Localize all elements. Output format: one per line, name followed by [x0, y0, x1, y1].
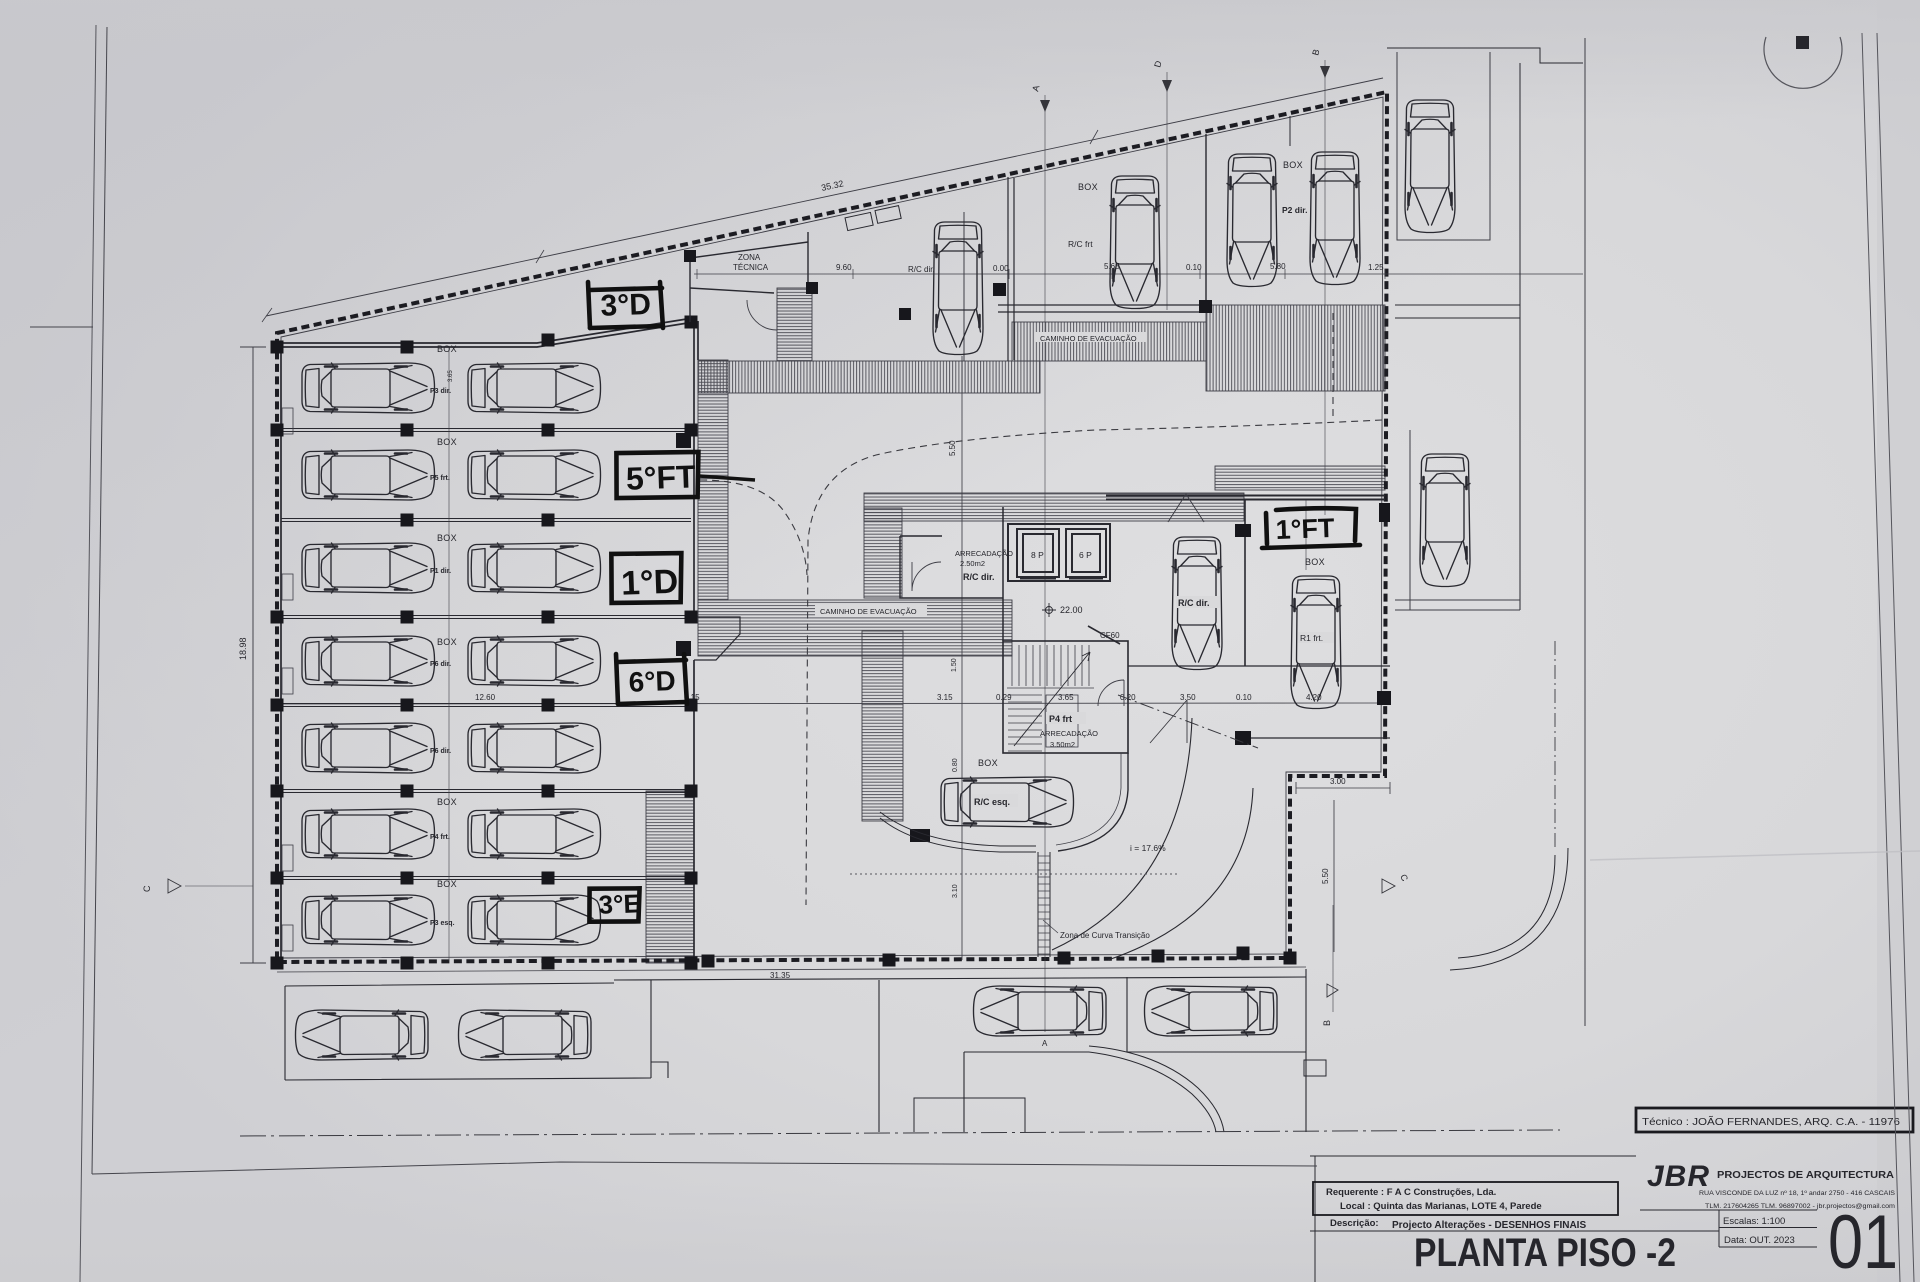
svg-text:R/C esq.: R/C esq.	[974, 797, 1010, 807]
svg-text:0.80: 0.80	[952, 758, 959, 772]
svg-text:JBR: JBR	[1647, 1160, 1710, 1193]
svg-text:Requerente : F A C Construçõe: Requerente : F A C Construções, Lda.	[1326, 1187, 1496, 1198]
svg-text:3.00: 3.00	[1330, 777, 1346, 786]
svg-text:R/C dir.: R/C dir.	[908, 265, 935, 274]
svg-text:A: A	[1042, 1039, 1048, 1048]
svg-text:CAMINHO DE EVACUAÇÃO: CAMINHO DE EVACUAÇÃO	[820, 607, 917, 616]
svg-text:1.50: 1.50	[951, 658, 958, 672]
svg-text:1.25: 1.25	[1368, 263, 1384, 272]
svg-text:Descrição:: Descrição:	[1330, 1218, 1379, 1229]
svg-text:P3 esq.: P3 esq.	[430, 920, 455, 927]
svg-text:RUA VISCONDE DA LUZ nº 18, 1º: RUA VISCONDE DA LUZ nº 18, 1º andar 2750…	[1699, 1190, 1895, 1197]
svg-text:BOX: BOX	[1078, 182, 1098, 192]
svg-text:ARRECADAÇÃO: ARRECADAÇÃO	[1040, 729, 1098, 738]
svg-text:Data: OUT. 2023: Data: OUT. 2023	[1724, 1235, 1795, 1246]
svg-text:ZONA: ZONA	[738, 253, 761, 262]
svg-text:1°FT: 1°FT	[1275, 513, 1335, 545]
svg-text:0.10: 0.10	[1186, 263, 1202, 272]
svg-text:P2 dir.: P2 dir.	[1282, 205, 1308, 215]
svg-text:22.00: 22.00	[1060, 605, 1083, 615]
svg-text:3.10: 3.10	[952, 884, 959, 898]
svg-text:9.60: 9.60	[836, 263, 852, 272]
svg-text:P4 frt.: P4 frt.	[430, 834, 450, 841]
svg-text:R1 frt.: R1 frt.	[1300, 633, 1323, 643]
svg-text:P1 dir.: P1 dir.	[430, 568, 451, 575]
svg-text:Projecto Alterações - DESENHOS: Projecto Alterações - DESENHOS FINAIS	[1392, 1220, 1586, 1231]
svg-text:0.00: 0.00	[993, 264, 1009, 273]
svg-text:BOX: BOX	[437, 344, 457, 354]
svg-text:P6 dir.: P6 dir.	[430, 748, 451, 755]
svg-text:P3 dir.: P3 dir.	[430, 388, 451, 395]
svg-text:5°FT: 5°FT	[625, 458, 696, 496]
svg-text:3°D: 3°D	[600, 288, 651, 323]
svg-text:R/C dir.: R/C dir.	[1178, 598, 1210, 608]
svg-text:BOX: BOX	[437, 533, 457, 543]
svg-text:BOX: BOX	[437, 437, 457, 447]
svg-text:0.29: 0.29	[996, 693, 1012, 702]
svg-text:6 P: 6 P	[1079, 550, 1092, 560]
svg-text:BOX: BOX	[1305, 557, 1325, 567]
svg-text:P6 dir.: P6 dir.	[430, 661, 451, 668]
svg-text:Técnico : JOÃO FERNANDES, ARQ.: Técnico : JOÃO FERNANDES, ARQ. C.A. - 11…	[1642, 1115, 1900, 1128]
svg-text:R/C frt: R/C frt	[1068, 239, 1093, 249]
svg-text:BOX: BOX	[437, 637, 457, 647]
svg-text:Escalas: 1:100: Escalas: 1:100	[1723, 1216, 1785, 1227]
svg-text:6°D: 6°D	[628, 665, 676, 698]
svg-text:BOX: BOX	[978, 758, 998, 768]
svg-text:1°D: 1°D	[620, 563, 678, 603]
svg-text:3.15: 3.15	[937, 693, 953, 702]
svg-text:3.50m2: 3.50m2	[1050, 740, 1075, 749]
svg-text:3.65: 3.65	[1058, 693, 1074, 702]
svg-text:18.98: 18.98	[238, 637, 248, 660]
svg-text:01: 01	[1828, 1200, 1898, 1282]
svg-text:PLANTA PISO -2: PLANTA PISO -2	[1414, 1231, 1676, 1275]
svg-text:8 P: 8 P	[1031, 550, 1044, 560]
svg-text:Local : Quinta das Marianas, L: Local : Quinta das Marianas, LOTE 4, Par…	[1340, 1201, 1542, 1212]
svg-text:5.80: 5.80	[1270, 262, 1286, 271]
svg-text:i = 17.6%: i = 17.6%	[1130, 843, 1166, 853]
svg-text:P4 frt: P4 frt	[1049, 714, 1072, 724]
svg-text:CAMINHO DE EVACUAÇÃO: CAMINHO DE EVACUAÇÃO	[1040, 334, 1137, 343]
svg-text:BOX: BOX	[437, 879, 457, 889]
svg-text:R/C dir.: R/C dir.	[963, 572, 995, 582]
svg-text:ARRECADAÇÃO: ARRECADAÇÃO	[955, 549, 1013, 558]
svg-text:3.50: 3.50	[1180, 693, 1196, 702]
svg-text:3°E: 3°E	[598, 888, 641, 919]
svg-text:31.35: 31.35	[770, 971, 791, 980]
svg-text:TÉCNICA: TÉCNICA	[733, 263, 769, 272]
svg-text:BOX: BOX	[1283, 160, 1303, 170]
svg-text:C: C	[142, 885, 152, 892]
svg-text:B: B	[1322, 1020, 1332, 1026]
svg-text:5.50: 5.50	[1321, 868, 1330, 884]
svg-text:Zona de Curva Transição: Zona de Curva Transição	[1060, 931, 1150, 940]
svg-text:P5 frt.: P5 frt.	[430, 475, 450, 482]
svg-text:12.60: 12.60	[475, 693, 496, 702]
svg-text:PROJECTOS DE ARQUITECTURA: PROJECTOS DE ARQUITECTURA	[1717, 1169, 1894, 1181]
svg-text:2.50m2: 2.50m2	[960, 559, 985, 568]
svg-text:0.10: 0.10	[1236, 693, 1252, 702]
svg-text:3.65: 3.65	[448, 370, 454, 382]
svg-text:BOX: BOX	[437, 797, 457, 807]
